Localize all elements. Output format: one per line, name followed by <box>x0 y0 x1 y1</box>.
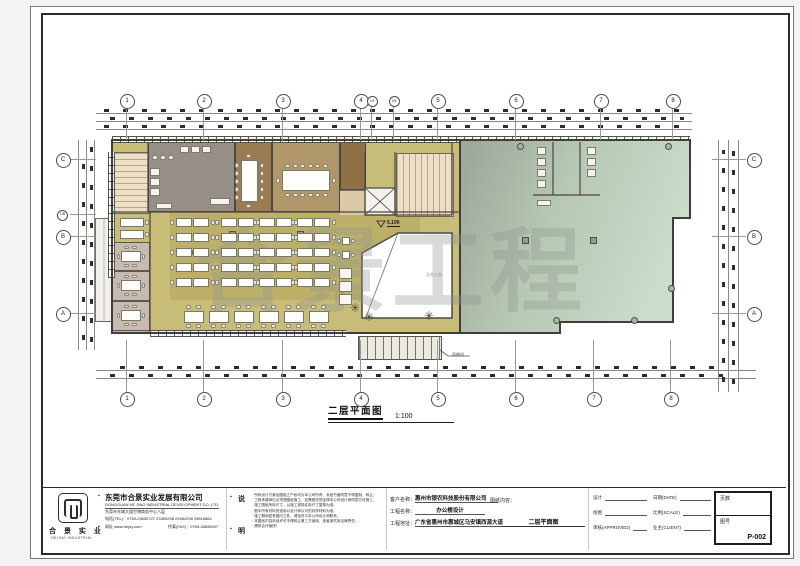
workstation-desk <box>314 233 330 242</box>
office-chair <box>124 305 129 308</box>
workstation-chair <box>291 220 295 225</box>
title-block-separator <box>386 488 387 550</box>
company-address: 东莞市东城大道世博商务中心八层 <box>105 509 165 515</box>
toilet-stall <box>537 180 546 188</box>
office-chair <box>132 305 137 308</box>
plant-icon: ✳ <box>364 311 374 323</box>
plan-scale: 1:100 <box>395 413 413 420</box>
conference-chair <box>308 193 313 197</box>
office-chair <box>124 275 129 278</box>
grid-bubble-left: B <box>56 230 71 245</box>
company-logo-sub: HEJING INDUSTRIAL <box>51 536 92 540</box>
office-chair <box>124 293 129 296</box>
company-fax: 传真(FAX)：0769-28656007 <box>168 524 218 530</box>
conference-table <box>282 170 330 191</box>
workstation-chair <box>236 324 241 328</box>
workstation-chair <box>145 220 149 225</box>
workstation-desk <box>297 248 313 257</box>
conference-chair <box>315 193 320 197</box>
grid-bubble-top: 5 <box>431 94 446 109</box>
workstation-chair <box>253 265 257 270</box>
company-name-en: DONGGUAN HE JING INDUSTRIAL DEVELOPMENT … <box>105 502 219 509</box>
grid-stem <box>515 106 516 140</box>
window-band-left <box>108 152 115 278</box>
workstation-chair <box>170 265 174 270</box>
drawing-no-label: 图号 <box>720 519 730 525</box>
conference-chair <box>235 163 239 168</box>
grid-bubble-bottom: 3 <box>276 392 291 407</box>
urinal <box>152 155 158 160</box>
workstation-chair <box>311 305 316 309</box>
sink-counter <box>156 203 172 209</box>
workstation-chair <box>271 324 276 328</box>
urinal <box>160 155 166 160</box>
sink-counter <box>537 200 551 206</box>
workstation-desk <box>259 311 279 323</box>
grid-bubble-top: 7 <box>594 94 609 109</box>
workstation-chair <box>196 324 201 328</box>
workstation-chair <box>170 250 174 255</box>
grid-stem <box>282 340 283 392</box>
canopy-label: 雨棚线 <box>452 353 464 357</box>
workstation-chair <box>291 265 295 270</box>
workstation-desk <box>238 263 254 272</box>
workstation-chair <box>211 324 216 328</box>
conference-chair <box>293 164 298 168</box>
lounge-chair <box>337 253 341 257</box>
grid-bubble-left: A <box>56 307 71 322</box>
grid-bubble-bottom: 6 <box>509 392 524 407</box>
office-table <box>121 251 141 262</box>
notes-label-bottom: 明 <box>238 526 245 536</box>
grid-stem <box>712 313 746 314</box>
office-chair <box>117 283 120 288</box>
workstation-chair <box>170 220 174 225</box>
grid-stem <box>70 313 96 314</box>
workstation-chair <box>236 305 241 309</box>
workstation-desk <box>259 248 275 257</box>
grid-stem <box>712 159 746 160</box>
conference-chair <box>246 154 251 158</box>
grid-stem <box>393 106 394 140</box>
cabinet <box>339 268 352 279</box>
toilet-stall <box>191 146 200 153</box>
office-chair <box>117 313 120 318</box>
stair-west <box>114 152 150 214</box>
workstation-desk <box>221 218 237 227</box>
level-mark: 5.100 <box>387 220 400 227</box>
workstation-desk <box>238 248 254 257</box>
workstation-desk <box>238 218 254 227</box>
workstation-desk <box>193 218 209 227</box>
workstation-desk <box>221 248 237 257</box>
conference-chair <box>332 178 336 183</box>
column <box>590 237 597 244</box>
window-band-top <box>112 136 690 143</box>
notes-lines: · 所有设计方案及图纸之产权均为本公司所有，未经书面同意不得复制、转让。· 工程… <box>252 493 384 529</box>
drawing-no-value: P-002 <box>747 534 766 541</box>
grid-stem <box>203 106 204 140</box>
workstation-desk <box>193 263 209 272</box>
grid-stem <box>360 106 361 140</box>
plan-title: 二层平面图 <box>328 403 383 420</box>
workstation-chair <box>186 305 191 309</box>
workstation-chair <box>215 280 219 285</box>
workstation-chair <box>186 324 191 328</box>
workstation-chair <box>215 235 219 240</box>
workstation-chair <box>286 305 291 309</box>
office-chair <box>132 246 137 249</box>
workstation-chair <box>286 324 291 328</box>
grid-stem <box>203 340 204 392</box>
grid-stem <box>70 214 96 215</box>
company-section: 合 景 实 业 HEJING INDUSTRIAL ▪ 东莞市合景实业发展有限公… <box>48 491 224 549</box>
office-chair <box>132 264 137 267</box>
project-row: 工程名称： 办公楼设计 <box>390 506 485 515</box>
plant-icon: ✳ <box>424 310 434 322</box>
workstation-desk <box>314 263 330 272</box>
notes-section: ▪ 说 ▪ 明 · 所有设计方案及图纸之产权均为本公司所有，未经书面同意不得复制… <box>230 490 384 550</box>
grid-bubble-bottom: 4 <box>354 392 369 407</box>
toilet-stall <box>150 168 160 176</box>
grid-stem <box>126 340 127 392</box>
grid-stem <box>437 106 438 140</box>
office-chair <box>142 283 145 288</box>
workstation-desk <box>184 311 204 323</box>
workstation-chair <box>145 232 149 237</box>
workstation-chair <box>253 250 257 255</box>
office-chair <box>124 246 129 249</box>
lift-lobby-floor <box>340 190 365 215</box>
workstation-desk <box>259 263 275 272</box>
scale-label: 比例(SCALE) <box>653 510 680 516</box>
office-chair <box>132 275 137 278</box>
grid-bubble-top: 2 <box>197 94 212 109</box>
office-chair <box>117 254 120 259</box>
workstation-chair <box>253 280 257 285</box>
workstation-chair <box>215 250 219 255</box>
company-phone: 电话(TEL)：0769-23630727 23369298 23364298 … <box>105 516 212 522</box>
toilet-stall <box>537 158 546 166</box>
conference-chair <box>246 204 251 208</box>
workstation-desk <box>176 218 192 227</box>
workstation-chair <box>296 324 301 328</box>
grid-stem <box>712 236 746 237</box>
workstation-desk <box>238 233 254 242</box>
grid-stem <box>371 106 372 140</box>
workstation-desk <box>276 278 292 287</box>
conference-chair <box>323 164 328 168</box>
grid-stem <box>672 106 673 140</box>
grid-stem <box>282 106 283 140</box>
workstation-desk <box>276 263 292 272</box>
workstation-desk <box>297 263 313 272</box>
client-label: 客户名称： <box>390 496 415 503</box>
workstation-chair <box>332 220 336 225</box>
workstation-desk <box>176 248 192 257</box>
workstation-chair <box>332 235 336 240</box>
lounge-chair <box>337 239 341 243</box>
workstation-chair <box>170 280 174 285</box>
workstation-chair <box>196 305 201 309</box>
store-room-floor <box>340 142 366 190</box>
column <box>668 285 675 292</box>
conference-chair <box>260 195 264 200</box>
bullet-icon: ▪ <box>98 493 100 499</box>
client-value: 惠州市银农科技股份有限公司 <box>415 494 498 503</box>
workstation-desk <box>297 218 313 227</box>
workstation-chair <box>246 305 251 309</box>
grid-stem <box>593 340 594 392</box>
workstation-desk <box>284 311 304 323</box>
conference-chair <box>235 171 239 176</box>
elevator-cab <box>365 188 395 215</box>
workstation-chair <box>291 235 295 240</box>
grid-stem <box>515 340 516 392</box>
conference-chair <box>276 178 280 183</box>
workstation-desk <box>176 278 192 287</box>
design-label: 设计 <box>593 495 602 501</box>
pages-label: 页数 <box>716 493 770 516</box>
workstation-chair <box>332 265 336 270</box>
column <box>517 143 524 150</box>
content-value: 二层平面图 <box>502 517 585 527</box>
workstation-chair <box>321 305 326 309</box>
cabinet <box>339 281 352 292</box>
workstation-desk <box>314 278 330 287</box>
window-band-bottom <box>150 330 346 337</box>
workstation-desk <box>176 233 192 242</box>
workstation-desk <box>221 278 237 287</box>
grid-stem <box>600 106 601 140</box>
office-chair <box>124 264 129 267</box>
conference-chair <box>308 164 313 168</box>
workstation-chair <box>215 220 219 225</box>
company-logo-name: 合 景 实 业 <box>49 526 104 536</box>
office-chair <box>142 254 145 259</box>
column <box>522 237 529 244</box>
grid-stem <box>70 159 96 160</box>
grid-bubble-bottom: 1 <box>120 392 135 407</box>
workstation-desk <box>276 218 292 227</box>
company-web: 网址 www.hejoy.com <box>105 524 142 530</box>
draw-label: 绘图 <box>593 510 602 516</box>
column <box>631 317 638 324</box>
cabinet <box>339 294 352 305</box>
lounge-chair <box>351 239 355 243</box>
grid-bubble-top: 6 <box>509 94 524 109</box>
canopy-grille <box>358 336 442 360</box>
workstation-chair <box>261 324 266 328</box>
conference-chair <box>260 171 264 176</box>
workstation-desk <box>238 278 254 287</box>
conference-chair <box>235 195 239 200</box>
conference-chair <box>300 193 305 197</box>
workstation-chair <box>261 305 266 309</box>
workstation-chair <box>253 220 257 225</box>
title-block-separator <box>588 488 589 550</box>
workstation-desk <box>314 218 330 227</box>
notes-label-top: 说 <box>238 494 245 504</box>
toilet-stall <box>587 169 596 177</box>
grid-stem <box>360 340 361 392</box>
date-label: 日期(DATE) <box>653 495 677 501</box>
workstation-chair <box>311 324 316 328</box>
address-label: 工程地址： <box>390 520 415 527</box>
grid-bubble-top: 1/4 <box>367 96 378 107</box>
workstation-desk <box>259 218 275 227</box>
office-table <box>121 280 141 291</box>
toilet-stall <box>587 147 596 155</box>
grid-bubble-top: 8 <box>666 94 681 109</box>
workstation-desk <box>176 263 192 272</box>
workstation-desk <box>193 248 209 257</box>
toilet-stall <box>537 147 546 155</box>
conference-chair <box>260 163 264 168</box>
workstation-chair <box>291 280 295 285</box>
workstation-desk <box>309 311 329 323</box>
floor-plan: 5.100 天井上空 雨棚线 ✳ ✳ ✳ 合景工程 二层平面图 1:100 12… <box>0 0 800 566</box>
conference-chair <box>235 187 239 192</box>
workstation-desk <box>259 278 275 287</box>
workstation-chair <box>296 305 301 309</box>
workstation-chair <box>332 280 336 285</box>
grid-bubble-top: 3 <box>276 94 291 109</box>
approve-label: 审核(APPROVED) <box>593 525 630 531</box>
toilet-stall <box>150 188 160 196</box>
sink-counter <box>210 198 230 205</box>
conference-table <box>241 160 258 202</box>
workstation-desk <box>314 248 330 257</box>
workstation-desk <box>221 233 237 242</box>
workstation-chair <box>170 235 174 240</box>
toilet-stall <box>202 146 211 153</box>
workstation-chair <box>221 305 226 309</box>
workstation-chair <box>221 324 226 328</box>
conference-chair <box>300 164 305 168</box>
workstation-desk <box>276 248 292 257</box>
workstation-desk <box>120 230 144 239</box>
title-block-separator <box>226 488 227 550</box>
atrium-label: 天井上空 <box>426 273 442 277</box>
office-chair <box>132 323 137 326</box>
toilet-stall <box>587 158 596 166</box>
conference-chair <box>285 164 290 168</box>
office-chair <box>142 313 145 318</box>
workstation-desk <box>297 278 313 287</box>
lounge-table <box>342 251 350 259</box>
grid-bubble-bottom: 5 <box>431 392 446 407</box>
workstation-desk <box>221 263 237 272</box>
workstation-desk <box>276 233 292 242</box>
client-row: 客户名称： 惠州市银农科技股份有限公司 <box>390 494 498 503</box>
conference-chair <box>260 187 264 192</box>
grid-bubble-bottom: 2 <box>197 392 212 407</box>
title-block-divider <box>41 487 786 488</box>
client-sign-label: 业主(CLIENT) <box>653 525 681 531</box>
grid-bubble-right: A <box>747 307 762 322</box>
grid-bubble-left: C <box>56 153 71 168</box>
bullet-icon: ▪ <box>230 526 232 532</box>
workstation-chair <box>271 305 276 309</box>
workstation-desk <box>297 233 313 242</box>
note-line: · 顺祝合作愉快！ <box>252 524 384 529</box>
content-label: 图纸内容： <box>490 497 515 504</box>
drawing-sheet: 5.100 天井上空 雨棚线 ✳ ✳ ✳ 合景工程 二层平面图 1:100 12… <box>0 0 800 566</box>
grid-bubble-right: B <box>747 230 762 245</box>
page-number-box: 页数 图号 P-002 <box>714 491 772 545</box>
conference-chair <box>315 164 320 168</box>
toilet-stall <box>180 146 189 153</box>
workstation-chair <box>332 250 336 255</box>
workstation-chair <box>253 235 257 240</box>
urinal <box>168 155 174 160</box>
grid-bubble-bottom: 7 <box>587 392 602 407</box>
workstation-chair <box>211 305 216 309</box>
toilet-stall <box>150 178 160 186</box>
workstation-desk <box>259 233 275 242</box>
grid-bubble-bottom: 8 <box>664 392 679 407</box>
column <box>665 143 672 150</box>
workstation-chair <box>321 324 326 328</box>
signature-section: 设计 绘图 审核(APPROVED) 日期(DATE) 比例(SCALE) 业主… <box>593 491 711 549</box>
lounge-table <box>342 237 350 245</box>
grid-stem <box>126 106 127 140</box>
bullet-icon: ▪ <box>230 494 232 500</box>
grid-stem <box>670 340 671 392</box>
column <box>553 317 560 324</box>
bullet-icon: ▪ <box>98 524 100 530</box>
grid-bubble-left: 1/B <box>57 210 68 221</box>
grid-bubble-top: 2/4 <box>389 96 400 107</box>
conference-chair <box>235 179 239 184</box>
workstation-desk <box>234 311 254 323</box>
grid-stem <box>70 236 96 237</box>
project-fields: 客户名称： 惠州市银农科技股份有限公司 工程名称： 办公楼设计 工程地址： 广东… <box>390 491 586 549</box>
workstation-desk <box>209 311 229 323</box>
project-label: 工程名称： <box>390 508 415 515</box>
grid-bubble-right: C <box>747 153 762 168</box>
office-chair <box>124 323 129 326</box>
grid-bubble-top: 1 <box>120 94 135 109</box>
office-table <box>121 310 141 321</box>
conference-chair <box>293 193 298 197</box>
workstation-chair <box>215 265 219 270</box>
conference-chair <box>285 193 290 197</box>
workstation-chair <box>291 250 295 255</box>
toilet-stall <box>537 169 546 177</box>
grid-stem <box>437 340 438 392</box>
company-logo <box>58 493 88 523</box>
workstation-chair <box>246 324 251 328</box>
workstation-desk <box>193 278 209 287</box>
workstation-desk <box>120 218 144 227</box>
conference-chair <box>260 179 264 184</box>
workstation-desk <box>193 233 209 242</box>
lounge-chair <box>351 253 355 257</box>
project-value: 办公楼设计 <box>415 506 485 515</box>
stair-east <box>396 153 454 217</box>
conference-chair <box>323 193 328 197</box>
office-chair <box>132 293 137 296</box>
